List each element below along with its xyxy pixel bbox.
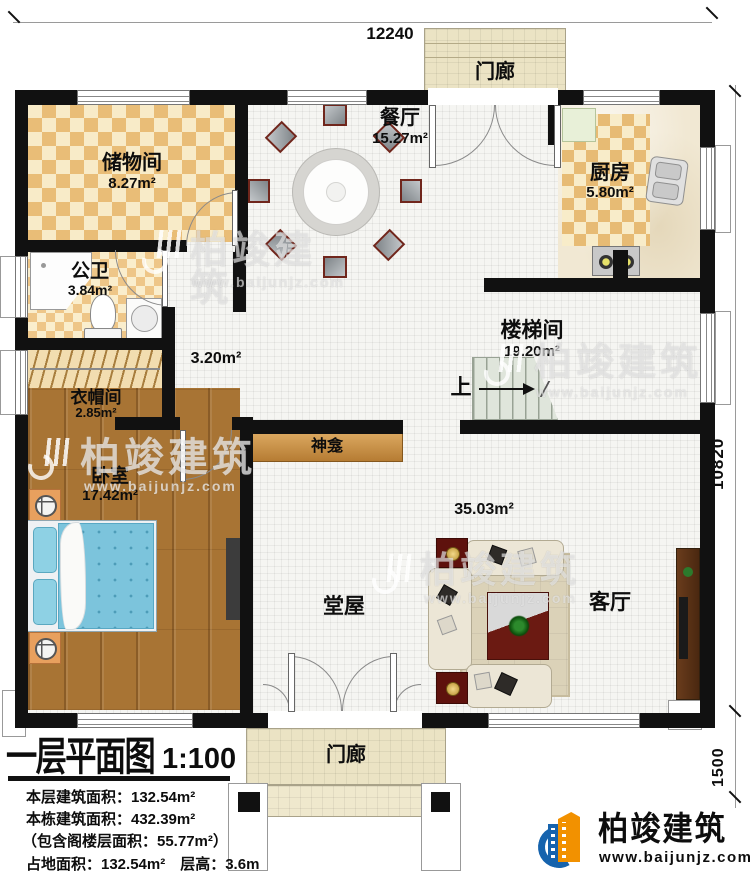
window bbox=[15, 256, 28, 318]
wall bbox=[367, 90, 428, 105]
wall bbox=[251, 420, 403, 434]
pillow bbox=[33, 579, 57, 625]
door-threshold bbox=[268, 711, 422, 728]
tv bbox=[679, 597, 688, 659]
logo-url: www.baijunjz.com bbox=[599, 850, 747, 866]
bath-label: 公卫 bbox=[55, 262, 125, 282]
door-leaf bbox=[554, 105, 561, 168]
dining-chair bbox=[248, 179, 270, 203]
company-logo: 柏竣建筑 www.baijunjz.com bbox=[536, 806, 746, 876]
cloak-rod bbox=[30, 368, 160, 370]
watermark: 柏竣建筑 www.baijunjz.com bbox=[370, 550, 610, 605]
logo-name: 柏竣建筑 bbox=[598, 812, 734, 847]
wall bbox=[640, 713, 715, 728]
wall bbox=[232, 417, 253, 430]
wall bbox=[700, 403, 715, 728]
wall bbox=[460, 420, 702, 434]
hall-area: 35.03m² bbox=[446, 502, 522, 519]
watermark: 柏竣建筑 www.baijunjz.com bbox=[26, 432, 261, 492]
watermark-url: www.baijunjz.com bbox=[536, 384, 689, 400]
blanket-fold bbox=[60, 522, 86, 630]
sink-basin bbox=[654, 161, 682, 180]
watermark-logo-icon bbox=[499, 344, 524, 372]
window bbox=[77, 90, 190, 105]
logo-building-blue bbox=[548, 824, 558, 862]
dining-label: 餐厅 bbox=[355, 108, 445, 129]
window bbox=[287, 90, 367, 105]
sofa-chaise bbox=[466, 664, 552, 708]
door-leaf bbox=[288, 653, 295, 712]
stairs-up-label: 上 bbox=[448, 377, 474, 399]
window-sill bbox=[715, 145, 731, 233]
wall bbox=[193, 713, 268, 728]
kitchen-area: 5.80m² bbox=[570, 185, 650, 201]
storage-area: 8.27m² bbox=[28, 176, 236, 192]
watermark-url: www.baijunjz.com bbox=[424, 590, 577, 606]
stats-line: （包含阁楼层面积：55.77m²） bbox=[22, 830, 228, 851]
wall bbox=[700, 230, 715, 313]
porch-step-line bbox=[425, 43, 565, 44]
logo-icon bbox=[536, 810, 596, 874]
logo-building-windows bbox=[551, 828, 555, 858]
dining-table-center bbox=[326, 182, 346, 202]
watermark-logo-icon bbox=[387, 554, 412, 582]
bedside-lamp bbox=[35, 638, 57, 660]
window bbox=[700, 147, 715, 230]
dining-chair bbox=[323, 104, 347, 126]
right-porch-dimension-label: 1500 bbox=[710, 738, 732, 796]
wall bbox=[700, 90, 715, 147]
watermark-text: 柏竣建筑 bbox=[420, 552, 580, 588]
window bbox=[488, 713, 640, 728]
cloak-area: 2.85m² bbox=[60, 406, 132, 420]
watermark-url: www.baijunjz.com bbox=[84, 478, 237, 494]
wall bbox=[613, 250, 628, 278]
shower-drain bbox=[41, 263, 46, 268]
tv-cabinet bbox=[676, 548, 700, 700]
storage-label: 储物间 bbox=[28, 153, 236, 174]
dining-table bbox=[292, 148, 380, 236]
burner bbox=[599, 255, 613, 269]
plan-scale: 1:100 bbox=[162, 744, 234, 774]
top-dimension-label: 12240 bbox=[350, 25, 430, 43]
right-dimension-line bbox=[735, 85, 736, 808]
shrine-cabinet: 神龛 bbox=[251, 433, 403, 462]
plan-title: 一层平面图 bbox=[6, 736, 185, 778]
tv-plant bbox=[683, 567, 693, 577]
hall-label: 堂屋 bbox=[316, 596, 372, 618]
kitchen-sink bbox=[645, 156, 689, 207]
door-leaf bbox=[390, 653, 397, 712]
window-sill bbox=[0, 350, 16, 415]
stair-label: 楼梯间 bbox=[492, 320, 572, 342]
bedroom-tv-panel bbox=[226, 538, 240, 620]
porch-top-label: 门廊 bbox=[425, 62, 565, 83]
top-dimension-line bbox=[13, 22, 712, 23]
watermark-logo-icon bbox=[45, 438, 70, 466]
watermark-url: www.baijunjz.com bbox=[192, 274, 345, 290]
wall bbox=[15, 90, 28, 256]
stats-line: 本栋建筑面积：432.39m² bbox=[26, 808, 195, 829]
porch-column-right bbox=[431, 792, 450, 812]
dim-tick bbox=[706, 7, 719, 20]
dining-chair bbox=[400, 179, 422, 203]
wall bbox=[15, 713, 77, 728]
window-sill bbox=[0, 256, 16, 318]
watermark-text: 柏竣建筑 bbox=[190, 232, 355, 308]
side-table bbox=[436, 672, 468, 704]
logo-building-orange bbox=[558, 812, 580, 862]
watermark-text: 柏竣建筑 bbox=[534, 344, 702, 382]
wall bbox=[162, 307, 175, 350]
wall bbox=[422, 713, 488, 728]
logo-building-windows bbox=[562, 822, 566, 858]
toilet bbox=[90, 294, 116, 332]
sofa-pillow bbox=[474, 672, 493, 691]
porch-column-left bbox=[238, 792, 260, 812]
wall bbox=[15, 338, 162, 350]
porch-step-line bbox=[425, 57, 565, 58]
wall bbox=[558, 90, 583, 105]
window bbox=[15, 350, 28, 415]
watermark: 柏竣建筑 www.baijunjz.com bbox=[482, 340, 722, 400]
corridor-area: 3.20m² bbox=[180, 351, 252, 368]
kitchen-label: 厨房 bbox=[570, 163, 650, 184]
floor-plan: 12240 10820 1500 门廊 门廊 上 神龛 bbox=[0, 0, 750, 881]
door-threshold bbox=[428, 88, 558, 105]
nightstand bbox=[29, 489, 61, 521]
sofa-pillow bbox=[494, 672, 518, 696]
sink-basin bbox=[652, 181, 680, 200]
porch-bottom-step bbox=[266, 785, 426, 817]
cloak-floor bbox=[28, 350, 162, 388]
nightstand bbox=[29, 632, 61, 664]
watermark: 柏竣建筑 www.baijunjz.com bbox=[140, 224, 355, 294]
bath-area: 3.84m² bbox=[50, 283, 130, 298]
porch-top: 门廊 bbox=[424, 28, 566, 92]
watermark-logo-icon bbox=[157, 230, 182, 258]
plant bbox=[508, 615, 530, 637]
wall bbox=[484, 278, 715, 292]
watermark-text: 柏竣建筑 bbox=[80, 438, 256, 478]
table-lamp bbox=[446, 682, 460, 696]
window bbox=[77, 713, 193, 728]
bath-sink bbox=[131, 305, 158, 332]
porch-bottom: 门廊 bbox=[246, 728, 446, 785]
dining-area: 15.27m² bbox=[350, 131, 450, 147]
porch-bottom-label: 门廊 bbox=[247, 745, 445, 766]
window bbox=[583, 90, 660, 105]
stats-line: 本层建筑面积：132.54m² bbox=[26, 786, 195, 807]
bed bbox=[27, 520, 157, 632]
title-rule bbox=[8, 776, 230, 781]
fridge bbox=[562, 108, 596, 142]
pillow bbox=[33, 527, 57, 573]
stats-line: 占地面积：132.54m² 层高：3.6m bbox=[26, 853, 259, 874]
shrine-label: 神龛 bbox=[252, 439, 402, 456]
sofa-pillow bbox=[437, 615, 458, 636]
bedside-lamp bbox=[35, 495, 57, 517]
